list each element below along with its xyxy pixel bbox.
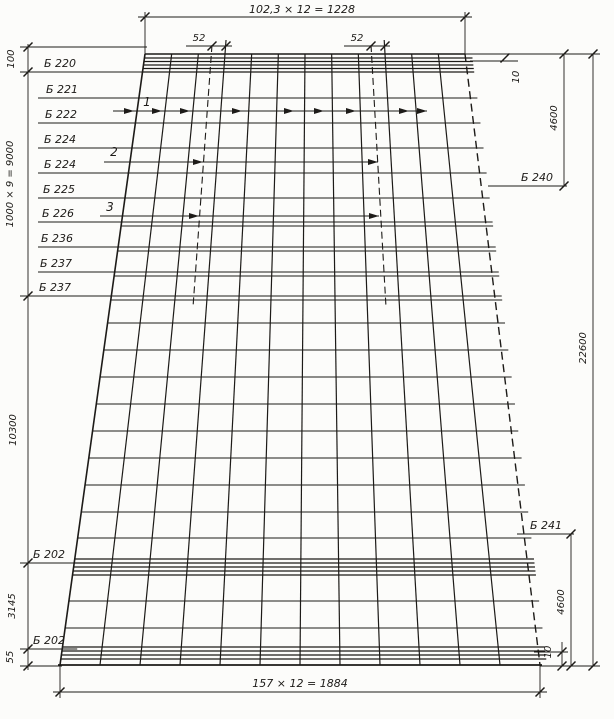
dimension-text: 4600 xyxy=(549,105,560,130)
grid-vertical xyxy=(140,54,198,665)
arrowhead-icon xyxy=(180,108,190,114)
dimension-text: 157 × 12 = 1884 xyxy=(252,677,347,690)
drawing-page: 123Б 220Б 221Б 222Б 224Б 224Б 225Б 226Б … xyxy=(0,0,614,719)
beam-mark-label: Б 237 xyxy=(40,257,72,270)
grid-vertical xyxy=(332,54,340,665)
beam-mark-label: Б 226 xyxy=(42,207,74,220)
callout-number: 1 xyxy=(143,95,151,109)
grid-vertical xyxy=(438,54,500,665)
grid-vertical xyxy=(300,54,305,665)
beam-mark-label: Б 202 xyxy=(33,634,65,647)
beam-mark-label: Б 240 xyxy=(521,171,553,184)
arrowhead-icon xyxy=(399,108,409,114)
outline-right-dashed xyxy=(465,54,540,665)
dashed-reference-line xyxy=(371,45,386,307)
dimension-text: 1000 × 9 = 9000 xyxy=(5,141,16,228)
arrowhead-icon xyxy=(346,108,356,114)
dimension-text: 10 xyxy=(543,646,554,659)
arrowhead-icon xyxy=(368,159,378,165)
arrowhead-icon xyxy=(193,159,203,165)
technical-drawing-svg: 123Б 220Б 221Б 222Б 224Б 224Б 225Б 226Б … xyxy=(0,0,614,719)
beam-mark-label: Б 202 xyxy=(33,548,65,561)
beam-mark-label: Б 220 xyxy=(44,57,76,70)
dimension-text: 10 xyxy=(511,71,522,84)
dimension-text: 102,3 × 12 = 1228 xyxy=(249,3,355,16)
grid-vertical xyxy=(260,54,278,665)
beam-mark-label: Б 224 xyxy=(44,158,76,171)
dimension-text: 22600 xyxy=(578,332,589,364)
dimension-text: 3145 xyxy=(7,593,18,618)
beam-mark-label: Б 225 xyxy=(43,183,75,196)
beam-mark-label: Б 224 xyxy=(44,133,76,146)
arrowhead-icon xyxy=(232,108,242,114)
arrowhead-icon xyxy=(189,213,199,219)
beam-mark-label: Б 221 xyxy=(46,83,78,96)
callout-number: 2 xyxy=(110,145,118,159)
callout-number: 3 xyxy=(106,200,114,214)
dimension-text: 52 xyxy=(193,33,206,44)
arrowhead-icon xyxy=(369,213,379,219)
dimension-text: 100 xyxy=(6,49,17,68)
arrowhead-icon xyxy=(417,108,427,114)
arrowhead-icon xyxy=(284,108,294,114)
arrowhead-icon xyxy=(314,108,324,114)
arrowhead-icon xyxy=(124,108,134,114)
beam-mark-label: Б 222 xyxy=(45,108,77,121)
dimension-text: 4600 xyxy=(556,589,567,614)
beam-mark-label: Б 241 xyxy=(530,519,562,532)
dimension-text: 55 xyxy=(5,651,16,664)
grid-vertical xyxy=(220,54,252,665)
arrowhead-icon xyxy=(152,108,162,114)
dimension-text: 10300 xyxy=(8,414,19,446)
beam-mark-label: Б 236 xyxy=(41,232,73,245)
beam-mark-label: Б 237 xyxy=(39,281,71,294)
grid-vertical xyxy=(412,54,460,665)
dimension-text: 52 xyxy=(351,33,364,44)
